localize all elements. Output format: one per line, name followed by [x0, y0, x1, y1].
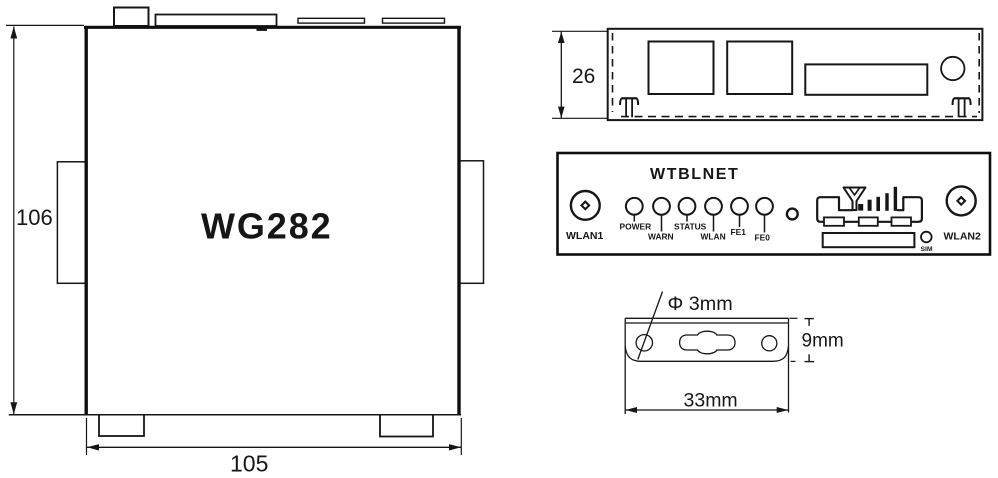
svg-text:106: 106: [16, 205, 53, 230]
svg-text:SIM: SIM: [921, 246, 933, 253]
svg-text:STATUS: STATUS: [674, 222, 707, 232]
svg-text:9mm: 9mm: [802, 330, 844, 351]
svg-text:26: 26: [572, 65, 595, 88]
svg-text:FE0: FE0: [755, 233, 771, 243]
svg-text:WLAN1: WLAN1: [566, 230, 603, 242]
svg-text:WTBLNET: WTBLNET: [650, 166, 739, 183]
svg-text:105: 105: [230, 451, 268, 477]
svg-text:Φ 3mm: Φ 3mm: [668, 293, 733, 315]
svg-text:POWER: POWER: [620, 222, 652, 232]
svg-text:WLAN2: WLAN2: [944, 231, 981, 243]
svg-text:FE1: FE1: [731, 227, 747, 237]
svg-text:WARN: WARN: [648, 232, 674, 242]
svg-text:WLAN: WLAN: [701, 232, 726, 242]
svg-text:WG282: WG282: [201, 206, 333, 247]
svg-text:33mm: 33mm: [684, 390, 738, 412]
